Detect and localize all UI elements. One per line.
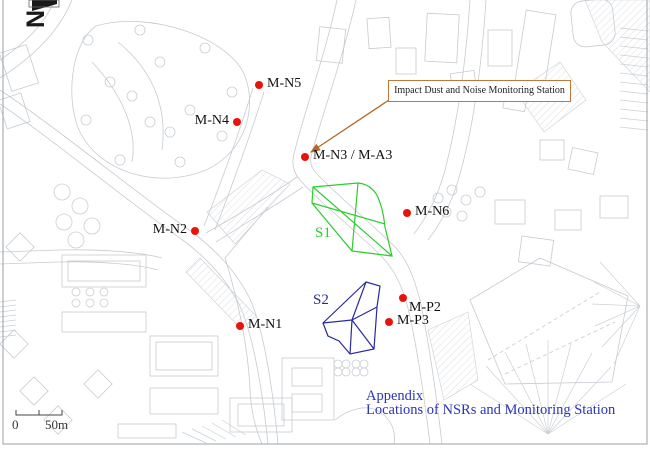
scale-distance-label: 50m <box>45 417 68 433</box>
site-s2-label: S2 <box>313 292 329 309</box>
scale-zero-label: 0 <box>12 417 19 433</box>
station-marker-icon <box>233 118 241 126</box>
station-label: M-N3 / M-A3 <box>313 148 392 164</box>
callout-text: Impact Dust and Noise Monitoring Station <box>394 85 565 96</box>
callout-box: Impact Dust and Noise Monitoring Station <box>388 80 571 102</box>
buildings-layer <box>0 0 628 438</box>
figure-title: Appendix Locations of NSRs and Monitorin… <box>366 389 615 417</box>
map-figure: N M-N5 M-N4 M-N3 / M-A3 M-N6 M-N2 M-N1 M… <box>0 0 650 460</box>
station-label: M-N6 <box>415 204 449 220</box>
hatch-layer <box>186 0 650 400</box>
station-label: M-N5 <box>267 76 301 92</box>
station-marker-icon <box>255 81 263 89</box>
figure-title-line1: Appendix <box>366 389 615 403</box>
site-s2-outline <box>323 282 380 354</box>
site-s1-outline <box>312 183 392 256</box>
station-marker-icon <box>403 209 411 217</box>
station-marker-icon <box>399 294 407 302</box>
station-marker-icon <box>301 153 309 161</box>
map-frame <box>3 0 647 444</box>
station-marker-icon <box>236 322 244 330</box>
station-label: M-N2 <box>153 222 187 238</box>
station-label: M-N1 <box>248 317 282 333</box>
north-arrow-letter: N <box>23 6 49 32</box>
station-label: M-P3 <box>397 313 429 329</box>
station-marker-icon <box>385 318 393 326</box>
site-s1-label: S1 <box>315 225 331 242</box>
callout-arrow <box>311 100 389 152</box>
scale-bar <box>16 410 62 415</box>
station-marker-icon <box>191 227 199 235</box>
figure-title-line2: Locations of NSRs and Monitoring Station <box>366 403 615 417</box>
station-label: M-N4 <box>195 113 229 129</box>
